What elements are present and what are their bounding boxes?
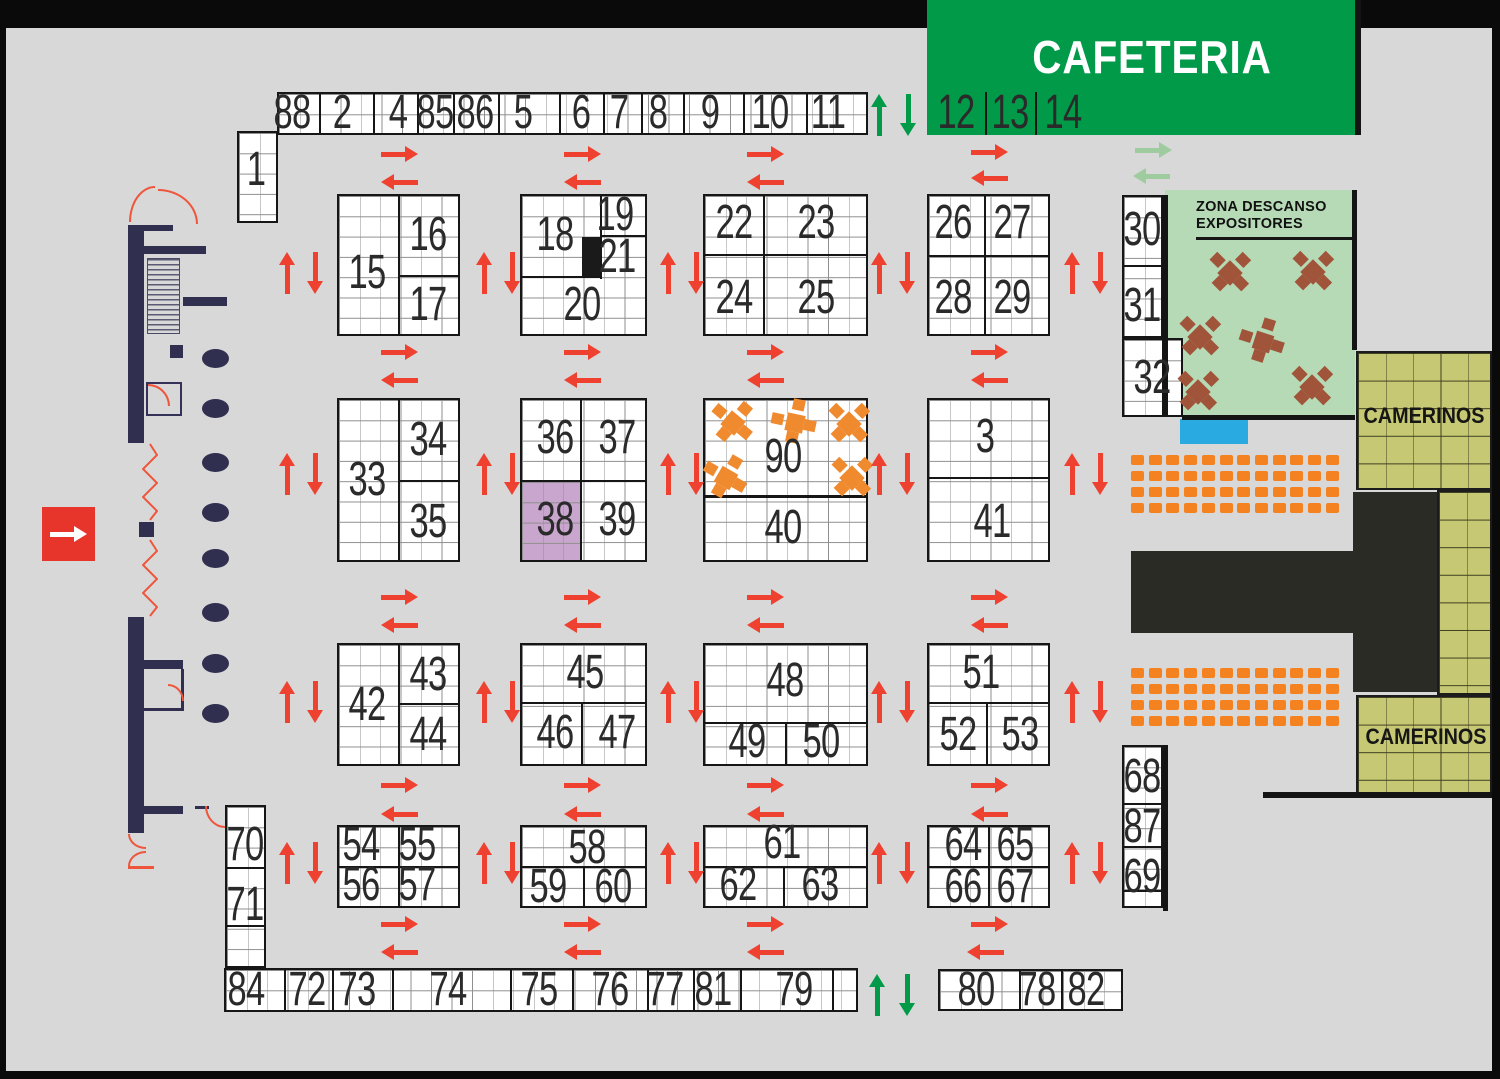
flow-arrow-left-icon xyxy=(971,372,1008,388)
flow-arrow-down-icon xyxy=(688,681,704,723)
divider xyxy=(373,92,375,135)
divider xyxy=(740,968,742,1012)
wall xyxy=(128,225,144,443)
booth-label-71: 71 xyxy=(226,881,263,929)
booth-label-46: 46 xyxy=(536,709,573,757)
booth-label-42: 42 xyxy=(348,681,385,729)
flow-arrow-up-icon xyxy=(1064,252,1080,294)
booth-label-26: 26 xyxy=(934,199,971,247)
divider xyxy=(806,92,808,135)
flow-arrow-down-icon xyxy=(688,453,704,495)
booth-label-62: 62 xyxy=(719,861,756,909)
flow-arrow-down-icon xyxy=(307,453,323,495)
booth-label-8: 8 xyxy=(649,89,668,137)
booth-label-86: 86 xyxy=(456,89,493,137)
flow-arrow-up-icon xyxy=(476,681,492,723)
booth-label-72: 72 xyxy=(288,966,325,1014)
flow-arrow-right-icon xyxy=(381,916,418,932)
booth-label-66: 66 xyxy=(944,863,981,911)
flow-arrow-up-icon xyxy=(476,453,492,495)
audience-chairs-grid xyxy=(1131,668,1343,732)
booth-label-36: 36 xyxy=(536,414,573,462)
divider xyxy=(398,480,460,482)
booth-label-69: 69 xyxy=(1123,853,1160,901)
flow-arrow-up-icon xyxy=(279,453,295,495)
flow-arrow-left-icon xyxy=(564,372,601,388)
booth-label-88: 88 xyxy=(273,89,310,137)
cafeteria-edge xyxy=(1355,0,1361,135)
zona-descanso-title-line1: ZONA DESCANSO xyxy=(1196,199,1327,215)
divider xyxy=(510,968,512,1012)
flow-arrow-left-icon xyxy=(381,617,418,633)
flow-arrow-down-icon xyxy=(307,252,323,294)
flow-arrow-right-icon xyxy=(971,589,1008,605)
flow-arrow-down-icon xyxy=(307,842,323,884)
wall xyxy=(139,522,154,537)
stage-structure xyxy=(1131,551,1353,633)
booth-label-16: 16 xyxy=(409,211,446,259)
booth-label-50: 50 xyxy=(802,718,839,766)
booth-label-84: 84 xyxy=(227,966,264,1014)
flow-arrow-down-icon xyxy=(504,252,520,294)
divider xyxy=(832,968,834,1012)
booth-label-63: 63 xyxy=(801,861,838,909)
flow-arrow-up-icon xyxy=(871,842,887,884)
stage-structure xyxy=(1353,492,1437,692)
booth-label-13: 13 xyxy=(991,89,1028,137)
divider xyxy=(392,968,394,1012)
booth-label-41: 41 xyxy=(973,498,1010,546)
entrance-arrow-icon xyxy=(50,526,87,542)
booth-label-60: 60 xyxy=(594,863,631,911)
divider xyxy=(603,92,605,135)
divider xyxy=(1035,92,1037,135)
divider xyxy=(572,968,574,1012)
flow-arrow-right-icon xyxy=(971,344,1008,360)
flow-arrow-left-icon xyxy=(971,170,1008,186)
flow-arrow-up-icon xyxy=(1064,681,1080,723)
divider xyxy=(319,92,321,135)
booth-label-1: 1 xyxy=(247,146,266,194)
camerinos-bottom-label: CAMERINOS xyxy=(1365,724,1486,750)
booth-label-87: 87 xyxy=(1123,803,1160,851)
flow-arrow-left-icon xyxy=(971,617,1008,633)
zona-descanso-title-line2: EXPOSITORES xyxy=(1196,216,1303,232)
booth-label-51: 51 xyxy=(962,649,999,697)
divider xyxy=(985,92,987,135)
flow-arrow-left-icon xyxy=(381,174,418,190)
booth-label-37: 37 xyxy=(598,414,635,462)
booth-label-45: 45 xyxy=(566,649,603,697)
flow-arrow-right-icon xyxy=(564,589,601,605)
flow-arrow-up-icon xyxy=(279,842,295,884)
wall-line xyxy=(1163,745,1168,911)
booth-label-47: 47 xyxy=(598,709,635,757)
booth-label-3: 3 xyxy=(976,413,995,461)
flow-arrow-left-icon xyxy=(747,174,784,190)
booth-label-14: 14 xyxy=(1044,89,1081,137)
flow-arrow-left-icon xyxy=(971,806,1008,822)
booth-label-59: 59 xyxy=(529,863,566,911)
booth-label-73: 73 xyxy=(338,966,375,1014)
divider xyxy=(498,92,500,135)
flow-arrow-right-icon xyxy=(747,344,784,360)
divider xyxy=(1061,969,1063,1011)
booth-label-40: 40 xyxy=(764,504,801,552)
flow-arrow-right-icon xyxy=(971,777,1008,793)
booth-label-6: 6 xyxy=(572,89,591,137)
flow-arrow-up-icon xyxy=(1064,453,1080,495)
flow-arrow-right-icon xyxy=(381,344,418,360)
flow-arrow-up-icon xyxy=(660,252,676,294)
booth-label-10: 10 xyxy=(751,89,788,137)
entry-arrow-up-icon xyxy=(871,94,887,136)
divider xyxy=(559,92,561,135)
flow-arrow-down-icon xyxy=(1092,681,1108,723)
door-line xyxy=(128,866,154,869)
flow-arrow-left-icon xyxy=(747,806,784,822)
wall xyxy=(128,617,144,833)
divider xyxy=(683,92,685,135)
cafeteria-in-arrow-icon xyxy=(1135,142,1172,158)
divider xyxy=(641,92,643,135)
booth-label-80: 80 xyxy=(957,966,994,1014)
booth-label-33: 33 xyxy=(348,456,385,504)
flow-arrow-left-icon xyxy=(564,174,601,190)
curtain-zigzag xyxy=(142,539,158,617)
flow-arrow-right-icon xyxy=(381,589,418,605)
booth-label-7: 7 xyxy=(610,89,629,137)
zona-right-wall xyxy=(1352,190,1357,350)
booth-label-74: 74 xyxy=(429,966,466,1014)
booth-label-32: 32 xyxy=(1133,354,1170,402)
flow-arrow-down-icon xyxy=(1092,453,1108,495)
booth-label-77: 77 xyxy=(646,966,683,1014)
booth-label-79: 79 xyxy=(775,966,812,1014)
staircase xyxy=(147,258,180,334)
booth-label-78: 78 xyxy=(1018,966,1055,1014)
booth-label-85: 85 xyxy=(416,89,453,137)
divider xyxy=(986,702,988,766)
booth-label-70: 70 xyxy=(226,821,263,869)
divider xyxy=(927,477,1050,479)
wall xyxy=(143,806,183,814)
booth-label-61: 61 xyxy=(763,819,800,867)
flow-arrow-right-icon xyxy=(564,916,601,932)
booth-label-2: 2 xyxy=(333,89,352,137)
flow-arrow-right-icon xyxy=(381,777,418,793)
flow-arrow-up-icon xyxy=(660,842,676,884)
flow-arrow-left-icon xyxy=(564,944,601,960)
flow-arrow-up-icon xyxy=(660,681,676,723)
curtain-zigzag xyxy=(142,443,158,521)
flow-arrow-up-icon xyxy=(279,252,295,294)
divider xyxy=(398,275,460,277)
wall xyxy=(144,225,173,231)
booth-label-30: 30 xyxy=(1123,206,1160,254)
booth-label-76: 76 xyxy=(591,966,628,1014)
booth-label-67: 67 xyxy=(996,863,1033,911)
cafeteria-out-arrow-icon xyxy=(1133,168,1170,184)
flow-arrow-left-icon xyxy=(381,806,418,822)
exit-arrow-down-icon xyxy=(899,974,915,1016)
flow-arrow-down-icon xyxy=(899,842,915,884)
booth-label-90: 90 xyxy=(764,433,801,481)
flow-arrow-down-icon xyxy=(1092,252,1108,294)
booth-label-22: 22 xyxy=(715,199,752,247)
booth-label-49: 49 xyxy=(728,718,765,766)
flow-arrow-up-icon xyxy=(871,453,887,495)
booth-label-81: 81 xyxy=(694,966,731,1014)
divider xyxy=(763,194,765,336)
divider xyxy=(332,968,334,1012)
flow-arrow-left-icon xyxy=(381,944,418,960)
booth-label-9: 9 xyxy=(701,89,720,137)
divider xyxy=(743,92,745,135)
pool-rectangle xyxy=(1180,419,1248,444)
divider xyxy=(581,702,583,766)
booth-label-17: 17 xyxy=(409,281,446,329)
divider xyxy=(520,480,647,482)
booth-label-15: 15 xyxy=(348,249,385,297)
camerinos-top-label: CAMERINOS xyxy=(1363,403,1484,429)
flow-arrow-right-icon xyxy=(381,146,418,162)
booth-label-18: 18 xyxy=(536,211,573,259)
flow-arrow-right-icon xyxy=(564,344,601,360)
divider xyxy=(703,495,868,498)
audience-chairs-grid xyxy=(1131,455,1343,519)
divider xyxy=(927,255,1050,257)
flow-arrow-down-icon xyxy=(899,681,915,723)
wall xyxy=(181,669,184,711)
flow-arrow-down-icon xyxy=(899,453,915,495)
flow-arrow-down-icon xyxy=(504,453,520,495)
divider xyxy=(783,866,785,908)
divider xyxy=(703,254,868,256)
flow-arrow-left-icon xyxy=(564,617,601,633)
pillar-ovals xyxy=(202,0,229,1079)
flow-arrow-up-icon xyxy=(279,681,295,723)
divider xyxy=(1122,265,1163,267)
wall xyxy=(144,246,206,254)
booth-label-53: 53 xyxy=(1001,711,1038,759)
divider xyxy=(785,722,787,766)
divider xyxy=(284,968,286,1012)
divider xyxy=(927,702,1050,704)
booth-label-82: 82 xyxy=(1067,966,1104,1014)
flow-arrow-down-icon xyxy=(688,842,704,884)
booth-label-28: 28 xyxy=(934,274,971,322)
flow-arrow-down-icon xyxy=(688,252,704,294)
zona-bottom-wall xyxy=(1182,415,1355,420)
flow-arrow-right-icon xyxy=(971,916,1008,932)
booth-label-23: 23 xyxy=(797,199,834,247)
booth-label-11: 11 xyxy=(811,89,845,137)
booth-label-31: 31 xyxy=(1123,282,1160,330)
booth-label-39: 39 xyxy=(598,496,635,544)
flow-arrow-up-icon xyxy=(871,681,887,723)
booth-label-29: 29 xyxy=(993,274,1030,322)
divider xyxy=(398,703,460,705)
flow-arrow-down-icon xyxy=(899,252,915,294)
booth-label-68: 68 xyxy=(1123,753,1160,801)
flow-arrow-up-icon xyxy=(476,842,492,884)
booth-label-24: 24 xyxy=(715,274,752,322)
booth-label-44: 44 xyxy=(409,711,446,759)
zona-title-underline xyxy=(1196,237,1353,240)
booth-label-5: 5 xyxy=(514,89,533,137)
flow-arrow-down-icon xyxy=(504,681,520,723)
flow-arrow-right-icon xyxy=(747,589,784,605)
divider xyxy=(398,194,400,336)
exhibition-floor-plan: CAFETERIA ZONA DESCANSO EXPOSITORES CAME… xyxy=(0,0,1500,1079)
booth-label-25: 25 xyxy=(797,274,834,322)
flow-arrow-left-icon xyxy=(967,944,1004,960)
booth-label-34: 34 xyxy=(409,416,446,464)
booth-label-57: 57 xyxy=(398,861,435,909)
booth-label-48: 48 xyxy=(766,657,803,705)
wall-line xyxy=(1263,792,1492,798)
wall xyxy=(144,660,183,669)
camerinos-corridor xyxy=(1437,490,1492,695)
booth-label-35: 35 xyxy=(409,498,446,546)
booth-label-27: 27 xyxy=(993,199,1030,247)
cafeteria-title: CAFETERIA xyxy=(1032,30,1272,84)
flow-arrow-up-icon xyxy=(1064,842,1080,884)
flow-arrow-down-icon xyxy=(307,681,323,723)
booth-label-56: 56 xyxy=(342,861,379,909)
flow-arrow-left-icon xyxy=(747,372,784,388)
flow-arrow-right-icon xyxy=(564,146,601,162)
booth-label-38: 38 xyxy=(536,496,573,544)
divider xyxy=(984,194,986,336)
flow-arrow-left-icon xyxy=(747,617,784,633)
flow-arrow-right-icon xyxy=(564,777,601,793)
flow-arrow-up-icon xyxy=(871,252,887,294)
exit-arrow-down-icon xyxy=(900,94,916,136)
booth-label-4: 4 xyxy=(389,89,408,137)
booth-label-43: 43 xyxy=(409,651,446,699)
divider xyxy=(520,702,647,704)
flow-arrow-down-icon xyxy=(1092,842,1108,884)
booth-label-52: 52 xyxy=(939,711,976,759)
flow-arrow-left-icon xyxy=(381,372,418,388)
flow-arrow-right-icon xyxy=(747,916,784,932)
flow-arrow-left-icon xyxy=(564,806,601,822)
flow-arrow-left-icon xyxy=(747,944,784,960)
wall xyxy=(144,708,184,711)
flow-arrow-down-icon xyxy=(504,842,520,884)
flow-arrow-right-icon xyxy=(971,144,1008,160)
wall xyxy=(170,345,183,358)
flow-arrow-up-icon xyxy=(476,252,492,294)
entry-arrow-up-icon xyxy=(869,974,885,1016)
booth-label-20: 20 xyxy=(563,281,600,329)
booth-label-21: 21 xyxy=(598,233,635,281)
flow-arrow-right-icon xyxy=(747,146,784,162)
flow-arrow-up-icon xyxy=(660,453,676,495)
booth-label-75: 75 xyxy=(520,966,557,1014)
booth-label-12: 12 xyxy=(937,89,974,137)
flow-arrow-right-icon xyxy=(747,777,784,793)
